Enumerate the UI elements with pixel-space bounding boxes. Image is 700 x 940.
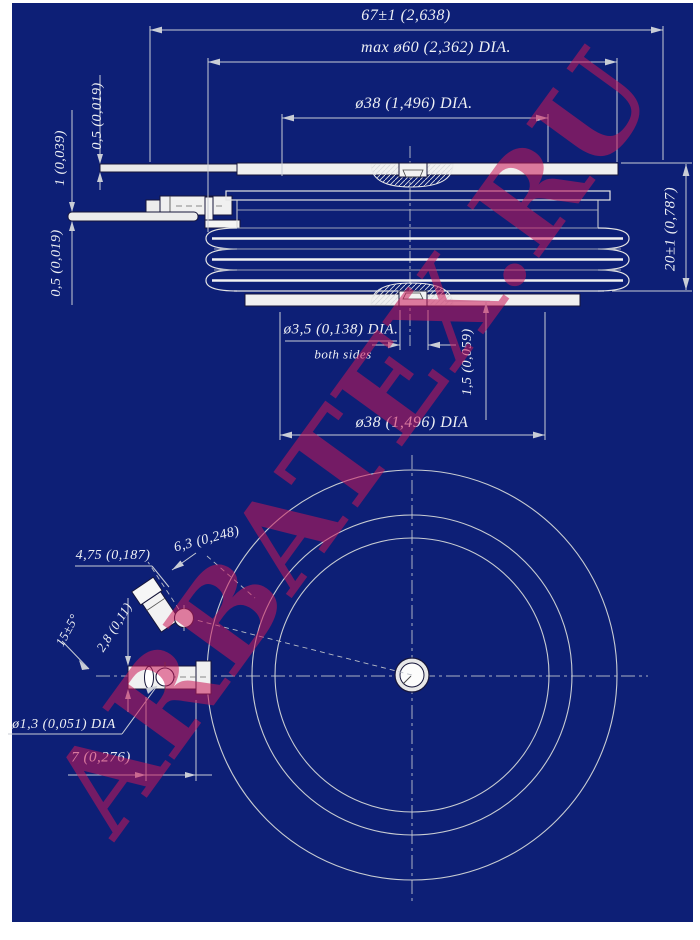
sheet-background bbox=[12, 3, 693, 922]
engineering-drawing-page: 67±1 (2,638) max ø60 (2,362) DIA. ø38 (1… bbox=[0, 0, 700, 940]
cathode-flex-lead bbox=[100, 164, 240, 172]
thyristor-capsule-drawing bbox=[0, 0, 700, 940]
dim-braid-thickness: 0,5 (0,019) bbox=[50, 229, 64, 296]
aux-terminal bbox=[128, 661, 211, 694]
dim-max-body-dia: max ø60 (2,362) DIA. bbox=[361, 40, 511, 56]
dim-center-hole-note: both sides bbox=[314, 348, 371, 361]
dim-gate-terminal-width: 4,75 (0,187) bbox=[76, 549, 151, 563]
aux-pin-hole bbox=[156, 668, 174, 686]
dim-gate-lead-thickness: 1 (0,039) bbox=[54, 130, 68, 186]
dim-center-hole-dia: ø3,5 (0,138) DIA. bbox=[284, 323, 399, 338]
dim-pin-hole-dia: ø1,3 (0,051) DIA bbox=[12, 718, 116, 732]
dim-terminal-offset: 7 (0,276) bbox=[71, 751, 131, 766]
dim-top-contact-dia: ø38 (1,496) DIA. bbox=[355, 96, 472, 112]
dim-overall-width: 67±1 (2,638) bbox=[361, 8, 450, 24]
dim-top-lead-thickness: 0,5 (0,019) bbox=[91, 82, 105, 149]
dim-bottom-contact-dia: ø38 (1,496) DIA bbox=[356, 415, 469, 431]
gate-pin-hole bbox=[175, 609, 194, 628]
gate-pin bbox=[205, 197, 213, 223]
dim-height: 20±1 (0,787) bbox=[664, 187, 679, 271]
dim-recess-depth: 1,5 (0,059) bbox=[461, 328, 475, 395]
gate-braid-lead bbox=[68, 212, 198, 221]
